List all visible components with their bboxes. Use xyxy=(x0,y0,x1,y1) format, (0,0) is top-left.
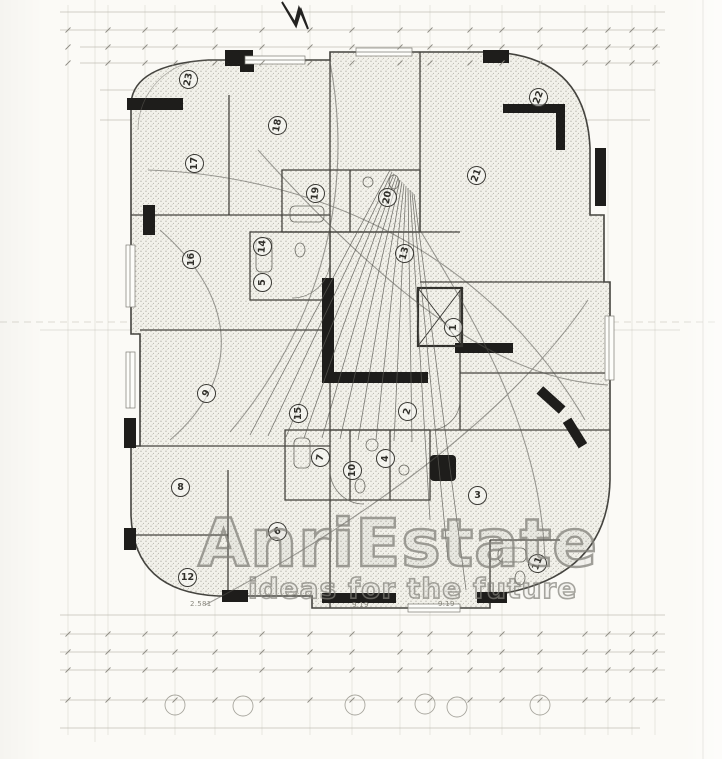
room-number-badge: 17 xyxy=(185,154,204,173)
room-number-badge: 5 xyxy=(253,273,272,292)
room-number-badge: 1 xyxy=(444,318,463,337)
room-number-badge: 15 xyxy=(289,404,308,423)
room-number-badge: 8 xyxy=(171,478,190,497)
room-number-badge: 4 xyxy=(376,449,395,468)
dimension-label: 2.581 xyxy=(190,600,212,608)
dimension-label: 9.19 xyxy=(438,600,455,608)
floor-plan-scan: AnriEstate ideas for the future 12345678… xyxy=(0,0,722,759)
dimension-label: 9.19 xyxy=(352,601,369,609)
room-number-badge: 10 xyxy=(343,461,362,480)
room-number-badge: 3 xyxy=(468,486,487,505)
floor-plan-drawing xyxy=(0,0,722,759)
room-number-badge: 12 xyxy=(178,568,197,587)
grid-bubbles xyxy=(165,694,550,717)
pen-mark-artifact xyxy=(282,2,308,29)
room-number-badge: 16 xyxy=(182,250,201,269)
